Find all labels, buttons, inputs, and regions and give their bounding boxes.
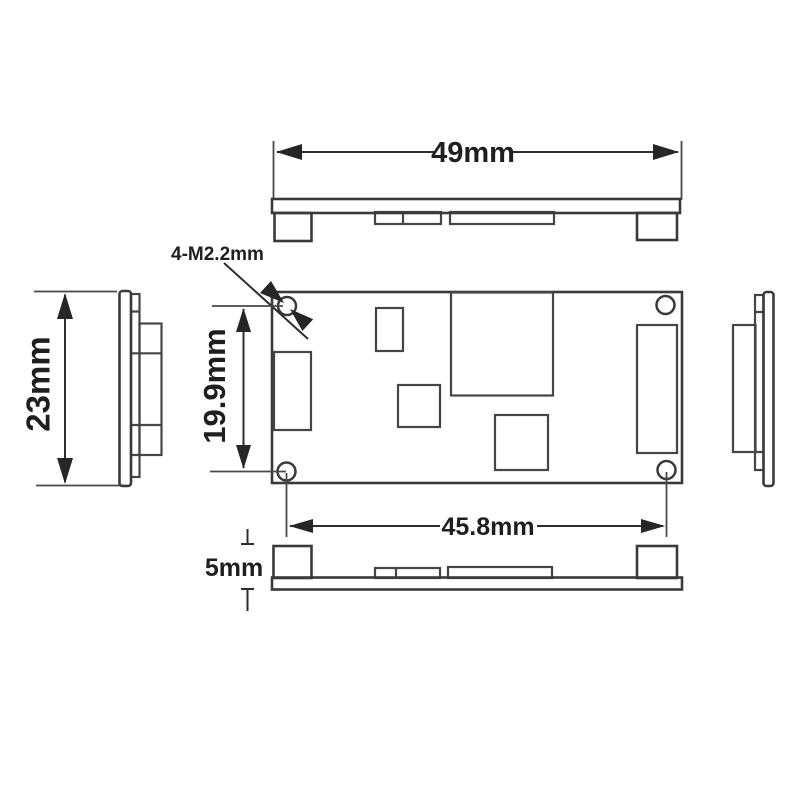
arrowhead-up-icon xyxy=(57,293,73,319)
mounting-holes-label: 4-M2.2mm xyxy=(171,244,264,265)
dimension-drawing-page: 49mm 23mm xyxy=(0,0,800,800)
component-large-ic xyxy=(451,293,553,396)
hole-arrowhead-lower-icon xyxy=(290,309,313,331)
top-profile-right-foot xyxy=(637,213,677,240)
dimension-drawing: 49mm 23mm xyxy=(0,0,800,800)
arrowhead-down-icon xyxy=(57,458,73,484)
left-side-connector-block xyxy=(140,324,162,456)
dim-side-height: 23mm xyxy=(20,292,126,486)
left-side-view: 23mm xyxy=(20,291,162,486)
top-profile-left-foot xyxy=(275,213,312,241)
top-profile-board-bar xyxy=(272,199,680,213)
hole-pitch-horizontal-label: 45.8mm xyxy=(441,513,534,541)
arrowhead-left-icon xyxy=(276,144,302,160)
board-width-label: 49mm xyxy=(431,137,515,169)
bottom-profile-right-foot xyxy=(637,546,677,578)
mounting-hole-top-right xyxy=(657,296,675,314)
left-side-block-steps xyxy=(131,353,162,425)
top-profile-view: 49mm xyxy=(272,137,682,241)
right-side-view xyxy=(733,292,774,486)
component-small-rect xyxy=(376,308,403,351)
board-outline xyxy=(272,292,682,483)
board-top-view: 4-M2.2mm 19.9mm 45.8mm xyxy=(171,244,682,541)
dim-standoff-height: 5mm xyxy=(205,529,263,611)
arrowhead-left-icon xyxy=(289,519,313,533)
bottom-profile-board-bar xyxy=(272,578,682,590)
right-side-connector-block xyxy=(733,325,756,452)
side-height-label: 23mm xyxy=(20,336,57,431)
right-side-board-strip xyxy=(764,292,774,486)
component-left-connector xyxy=(274,352,311,430)
component-center-square xyxy=(398,385,440,427)
bottom-profile-view: 5mm xyxy=(205,529,682,611)
component-right-connector xyxy=(637,325,677,453)
dim-board-width: 49mm xyxy=(274,137,682,200)
arrowhead-down-icon xyxy=(236,445,251,469)
left-side-board-strip xyxy=(120,291,132,486)
component-lower-square xyxy=(495,415,548,470)
bottom-profile-left-foot xyxy=(274,546,312,578)
standoff-height-label: 5mm xyxy=(205,554,263,582)
hole-pitch-vertical-label: 19.9mm xyxy=(197,328,232,443)
arrowhead-right-icon xyxy=(653,144,679,160)
arrowhead-up-icon xyxy=(236,308,251,332)
arrowhead-right-icon xyxy=(641,519,665,533)
